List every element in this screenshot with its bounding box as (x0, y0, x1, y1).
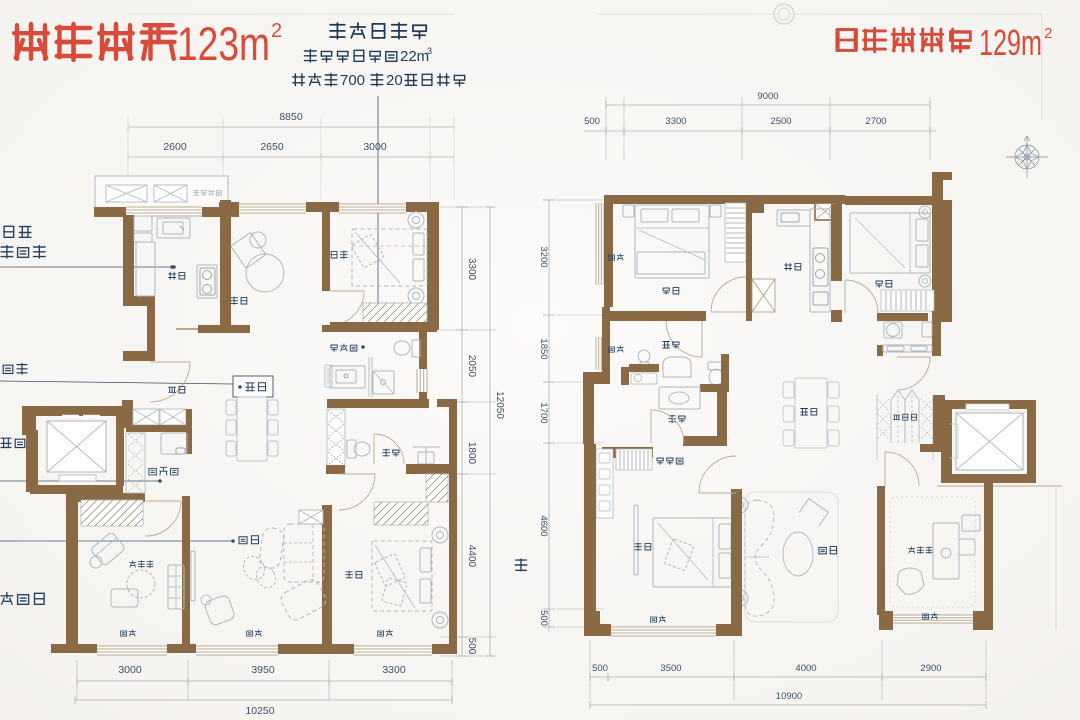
svg-text:22m: 22m (400, 48, 429, 65)
svg-text:1700: 1700 (538, 402, 549, 423)
svg-text:129m: 129m (979, 22, 1042, 63)
svg-text:3300: 3300 (665, 116, 686, 127)
svg-text:2: 2 (271, 20, 282, 42)
svg-text:2700: 2700 (865, 116, 886, 127)
svg-text:10900: 10900 (776, 691, 802, 702)
svg-text:12050: 12050 (494, 391, 505, 419)
svg-text:3500: 3500 (660, 663, 681, 674)
svg-text:20: 20 (386, 72, 403, 89)
svg-text:3: 3 (427, 46, 432, 56)
svg-text:500: 500 (592, 663, 608, 674)
svg-text:2: 2 (1044, 25, 1052, 42)
svg-text:3200: 3200 (538, 246, 549, 267)
svg-text:2600: 2600 (163, 141, 187, 153)
svg-text:4000: 4000 (795, 663, 816, 674)
svg-text:500: 500 (466, 638, 477, 655)
svg-text:2500: 2500 (770, 116, 791, 127)
svg-text:123m: 123m (177, 17, 270, 70)
svg-text:2650: 2650 (260, 141, 284, 153)
svg-text:4600: 4600 (538, 515, 549, 536)
svg-text:1800: 1800 (466, 442, 477, 465)
svg-text:3300: 3300 (382, 664, 406, 676)
svg-text:2900: 2900 (920, 663, 941, 674)
svg-text:4400: 4400 (466, 545, 477, 568)
svg-text:2050: 2050 (466, 355, 477, 378)
svg-text:8850: 8850 (279, 111, 303, 123)
svg-text:3950: 3950 (251, 664, 275, 676)
svg-text:3300: 3300 (466, 258, 477, 281)
svg-text:500: 500 (538, 610, 549, 626)
svg-text:1850: 1850 (538, 338, 549, 359)
svg-text:3000: 3000 (118, 664, 142, 676)
svg-text:500: 500 (584, 116, 600, 127)
svg-text:3000: 3000 (363, 141, 387, 153)
svg-text:9000: 9000 (757, 91, 778, 102)
svg-text:10250: 10250 (245, 705, 274, 717)
svg-text:700: 700 (340, 72, 365, 89)
